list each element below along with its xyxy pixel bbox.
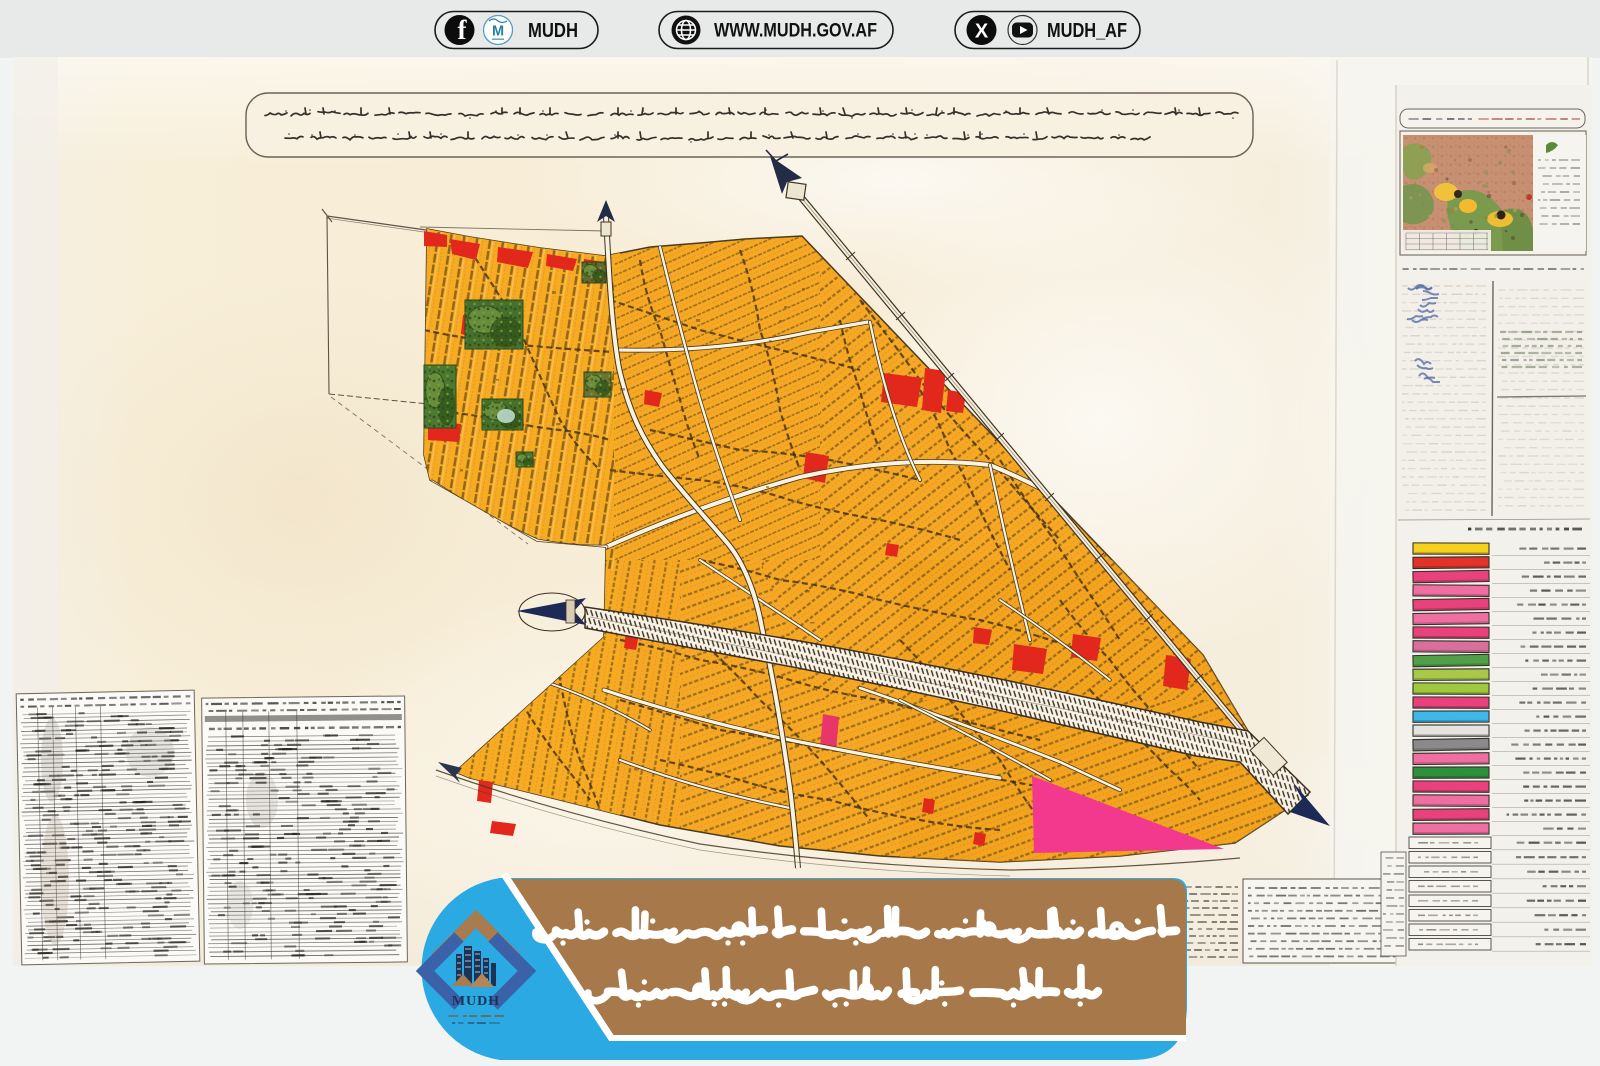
svg-text:MUDH: MUDH: [452, 994, 500, 1009]
svg-text:WWW.MUDH.GOV.AF: WWW.MUDH.GOV.AF: [714, 21, 877, 42]
svg-text:f: f: [458, 15, 468, 45]
svg-text:MUDH_AF: MUDH_AF: [1047, 20, 1127, 42]
svg-text:X: X: [975, 21, 989, 43]
svg-text:MUDH: MUDH: [528, 20, 578, 42]
svg-text:M: M: [492, 24, 504, 40]
